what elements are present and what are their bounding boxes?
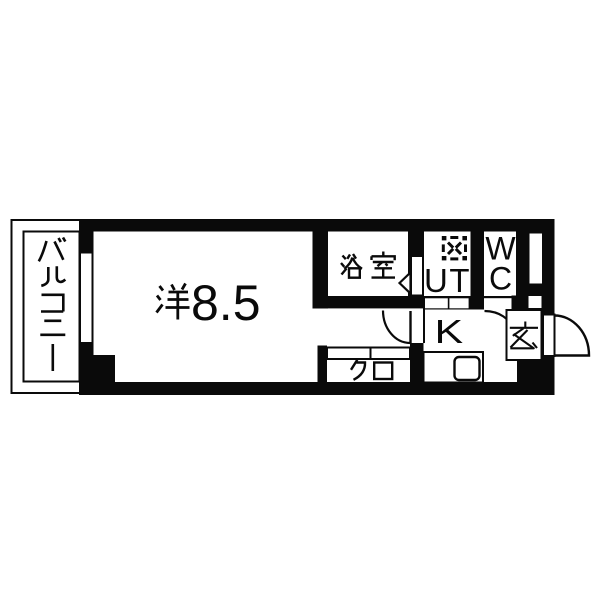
svg-text:C: C [489,261,512,297]
svg-text:8.5: 8.5 [191,275,261,331]
svg-text:K: K [435,314,464,351]
svg-text:UT: UT [424,262,471,299]
